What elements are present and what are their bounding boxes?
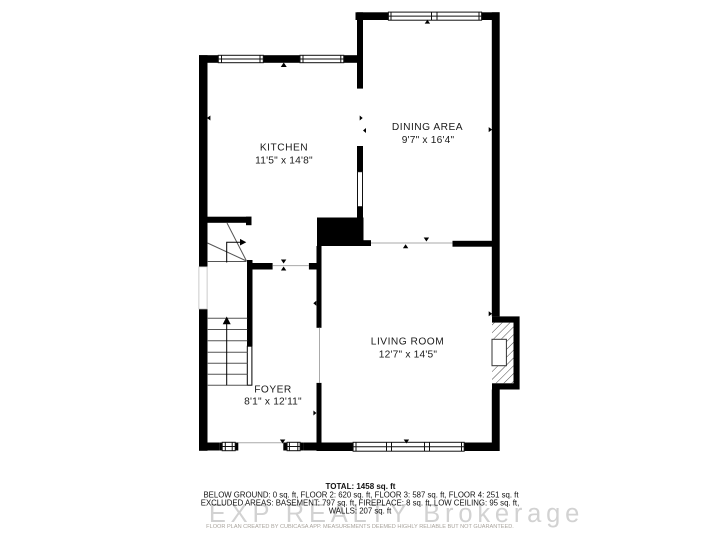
svg-text:8'1" x 12'11": 8'1" x 12'11" bbox=[244, 397, 302, 408]
svg-text:WALLS: 207 sq. ft: WALLS: 207 sq. ft bbox=[329, 506, 392, 515]
svg-text:9'7" x 16'4": 9'7" x 16'4" bbox=[402, 135, 455, 146]
svg-text:FLOOR PLAN CREATED BY CUBICASA: FLOOR PLAN CREATED BY CUBICASA APP. MEAS… bbox=[206, 524, 514, 530]
svg-text:FOYER: FOYER bbox=[254, 385, 292, 396]
svg-text:11'5" x 14'8": 11'5" x 14'8" bbox=[255, 156, 313, 167]
svg-text:LIVING ROOM: LIVING ROOM bbox=[371, 337, 444, 348]
svg-text:12'7" x 14'5": 12'7" x 14'5" bbox=[379, 350, 438, 361]
svg-text:DINING AREA: DINING AREA bbox=[392, 122, 463, 133]
svg-text:KITCHEN: KITCHEN bbox=[260, 143, 308, 154]
